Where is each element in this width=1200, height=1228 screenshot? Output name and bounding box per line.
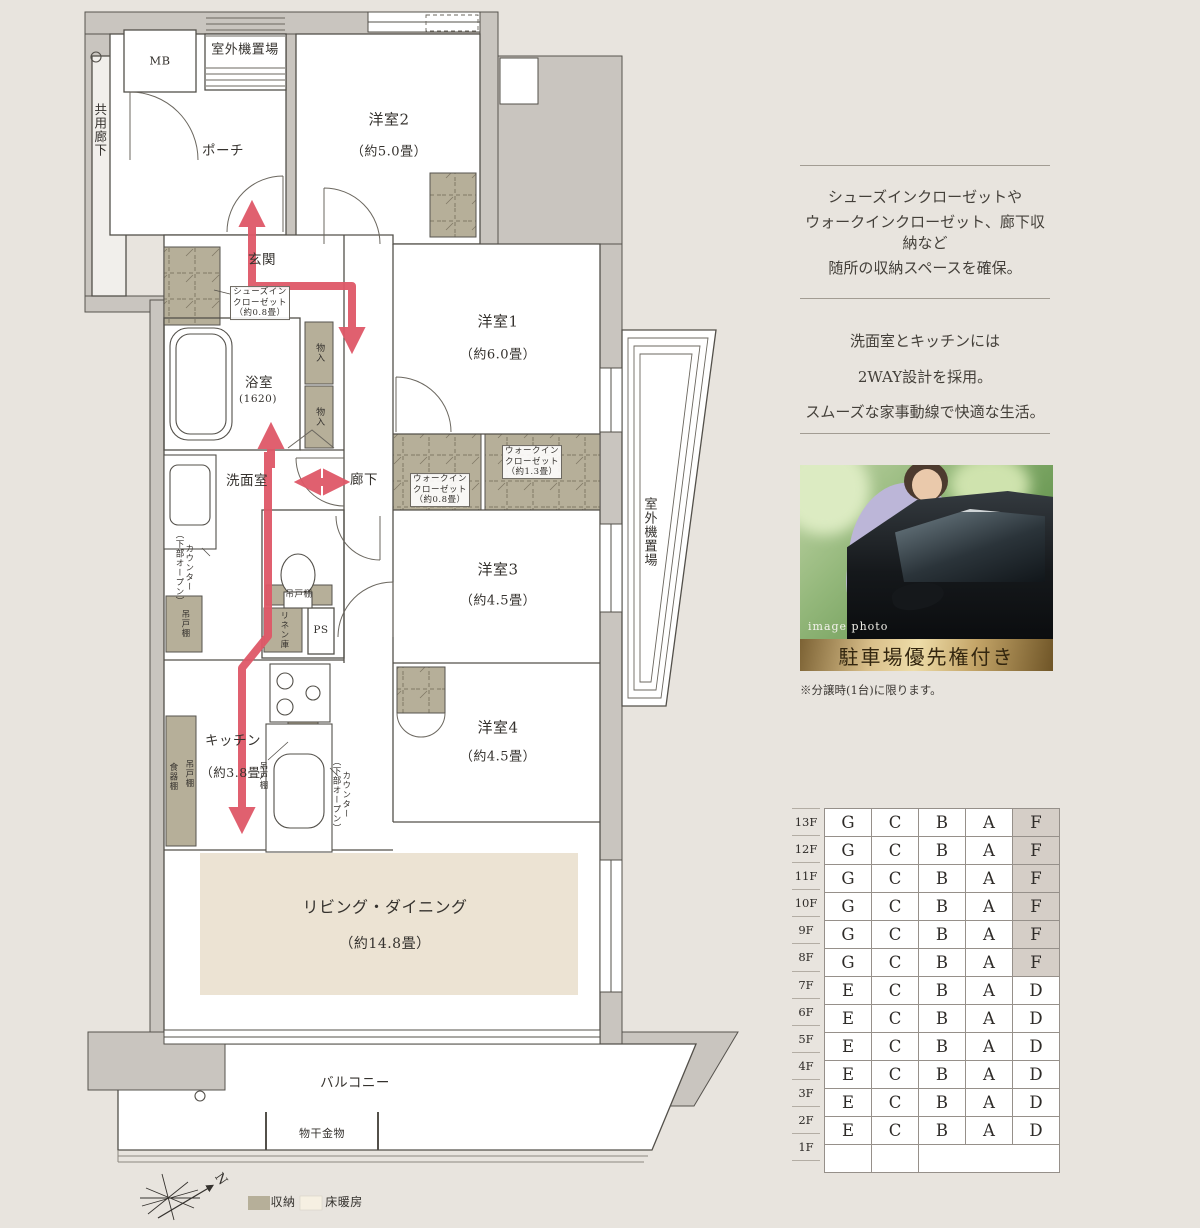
storage-small-label-2: 物入 xyxy=(314,407,324,427)
floor-plan-drawing xyxy=(0,0,770,1228)
table-row: ECBAD xyxy=(825,1033,1060,1061)
floor-label: 2F xyxy=(792,1106,820,1133)
unit-cell: E xyxy=(825,1005,872,1033)
feature-line: 洗面室とキッチンには xyxy=(800,330,1050,351)
parking-photo: image photo xyxy=(800,465,1053,639)
unit-cell xyxy=(919,1145,1060,1173)
feature-line: 随所の収納スペースを確保。 xyxy=(800,257,1050,278)
mb-label: MB xyxy=(149,54,170,69)
feature-line: ウォークインクローゼット、廊下収納など xyxy=(800,211,1050,253)
common-corridor-label: 共用廊下 xyxy=(92,103,106,157)
compass-icon xyxy=(140,1174,212,1220)
toilet-cupboard-label: 吊戸棚 xyxy=(285,589,312,600)
unit-cell: C xyxy=(872,949,919,977)
balcony-label: バルコニー xyxy=(320,1075,390,1093)
unit-cell: B xyxy=(919,865,966,893)
washroom-label: 洗面室 xyxy=(226,473,268,491)
unit-cell: F xyxy=(1013,893,1060,921)
legend-floor-heating-swatch xyxy=(300,1196,322,1210)
balcony-railing xyxy=(118,1150,648,1162)
unit-cell: B xyxy=(919,1033,966,1061)
bath-size-label: (1620) xyxy=(239,393,277,407)
unit-cell: C xyxy=(872,893,919,921)
room2-size-label: （約5.0畳） xyxy=(351,145,427,162)
unit-cell: A xyxy=(966,865,1013,893)
unit-cell: C xyxy=(872,809,919,837)
unit-cell: G xyxy=(825,809,872,837)
unit-cell: C xyxy=(872,1005,919,1033)
table-row: GCBAF xyxy=(825,893,1060,921)
floor-label: 8F xyxy=(792,943,820,970)
unit-cell: F xyxy=(1013,949,1060,977)
kitchen-cupboard-label: 吊戸棚 xyxy=(183,760,193,789)
ps-label: PS xyxy=(313,624,328,638)
stove xyxy=(270,664,330,722)
drying-fixture-label: 物干金物 xyxy=(296,1127,348,1141)
table-row: ECBAD xyxy=(825,1117,1060,1145)
sink-counter xyxy=(266,724,332,852)
unit-cell: F xyxy=(1013,809,1060,837)
person-face xyxy=(912,469,942,501)
floor-label-column: 13F12F11F10F9F8F7F6F5F4F3F2F1F xyxy=(792,808,820,1161)
unit-cell: D xyxy=(1013,1117,1060,1145)
floor-label: 13F xyxy=(792,808,820,835)
floor-label: 1F xyxy=(792,1133,820,1161)
kitchen-counter-label: カウンター （下部オープン） xyxy=(330,757,350,833)
parking-note: ※分譲時(1台)に限ります。 xyxy=(800,682,942,698)
table-row: ECBAD xyxy=(825,1061,1060,1089)
unit-cell: D xyxy=(1013,1061,1060,1089)
unit-cell: B xyxy=(919,1005,966,1033)
unit-cell: G xyxy=(825,921,872,949)
feature-line: シューズインクローゼットや xyxy=(800,186,1050,207)
bathtub xyxy=(170,328,232,440)
unit-cell: G xyxy=(825,893,872,921)
unit-cell: A xyxy=(966,1089,1013,1117)
unit-cell: B xyxy=(919,893,966,921)
sink-cupboard-label: 吊戸棚 xyxy=(257,762,267,791)
table-row: GCBAF xyxy=(825,921,1060,949)
feature-line: 2WAY設計を採用。 xyxy=(800,366,1050,387)
unit-cell: A xyxy=(966,1061,1013,1089)
unit-cell: A xyxy=(966,1033,1013,1061)
unit-cell: G xyxy=(825,837,872,865)
unit-cell: A xyxy=(966,893,1013,921)
wic13-label: ウォークイン クローゼット （約1.3畳） xyxy=(502,445,562,479)
feature-block-storage: シューズインクローゼットや ウォークインクローゼット、廊下収納など 随所の収納ス… xyxy=(800,186,1050,278)
unit-cell: F xyxy=(1013,837,1060,865)
floorplan-page: 共用廊下 MB 室外機置場 ポーチ 玄関 シューズイン クローゼット （約0.8… xyxy=(0,0,1200,1228)
floor-label: 3F xyxy=(792,1079,820,1106)
unit-cell: E xyxy=(825,977,872,1005)
room3-label: 洋室3 xyxy=(477,560,518,580)
unit-availability-table: GCBAFGCBAFGCBAFGCBAFGCBAFGCBAFECBADECBAD… xyxy=(824,808,1060,1173)
entrance-label: 玄関 xyxy=(248,252,276,270)
unit-cell: A xyxy=(966,837,1013,865)
dish-cupboard-label: 食器棚 xyxy=(167,763,177,792)
table-row xyxy=(825,1145,1060,1173)
unit-cell: B xyxy=(919,1089,966,1117)
unit-cell: B xyxy=(919,1117,966,1145)
linen-label: リネン庫 xyxy=(278,611,288,649)
unit-cell: A xyxy=(966,921,1013,949)
legend-storage-label: 収納 xyxy=(270,1195,295,1211)
unit-cell: C xyxy=(872,921,919,949)
room4-size-label: （約4.5畳） xyxy=(460,750,536,767)
unit-cell: C xyxy=(872,837,919,865)
storage-small-label-1: 物入 xyxy=(314,343,324,363)
unit-cell: F xyxy=(1013,865,1060,893)
legend-floor-heating-label: 床暖房 xyxy=(325,1195,363,1211)
floor-label: 9F xyxy=(792,916,820,943)
unit-cell: B xyxy=(919,921,966,949)
unit-cell: F xyxy=(1013,921,1060,949)
floor-label: 10F xyxy=(792,889,820,916)
shoes-in-closet-label: シューズイン クローゼット （約0.8畳） xyxy=(230,286,290,320)
floor-label: 7F xyxy=(792,971,820,998)
feature-line: スムーズな家事動線で快適な生活。 xyxy=(800,401,1050,422)
unit-cell: E xyxy=(825,1089,872,1117)
table-row: GCBAF xyxy=(825,949,1060,977)
table-row: ECBAD xyxy=(825,1089,1060,1117)
unit-cell: D xyxy=(1013,1005,1060,1033)
table-row: GCBAF xyxy=(825,837,1060,865)
unit-cell: B xyxy=(919,837,966,865)
unit-cell: A xyxy=(966,809,1013,837)
room3-size-label: （約4.5畳） xyxy=(460,594,536,611)
unit-cell: E xyxy=(825,1061,872,1089)
parking-priority-banner: 駐車場優先権付き xyxy=(800,639,1053,671)
room1-size-label: （約6.0畳） xyxy=(460,348,536,365)
divider-1 xyxy=(800,165,1050,166)
unit-cell: G xyxy=(825,865,872,893)
floor-label: 6F xyxy=(792,998,820,1025)
unit-cell: A xyxy=(966,949,1013,977)
unit-cell: A xyxy=(966,1117,1013,1145)
unit-cell: B xyxy=(919,949,966,977)
floor-label: 4F xyxy=(792,1052,820,1079)
table-row: GCBAF xyxy=(825,809,1060,837)
unit-cell: C xyxy=(872,1117,919,1145)
table-row: GCBAF xyxy=(825,865,1060,893)
unit-cell: D xyxy=(1013,1089,1060,1117)
unit-cell: C xyxy=(872,865,919,893)
image-photo-tag: image photo xyxy=(808,620,888,633)
table-row: ECBAD xyxy=(825,977,1060,1005)
unit-cell: G xyxy=(825,949,872,977)
legend-storage-swatch xyxy=(248,1196,270,1210)
unit-cell: B xyxy=(919,809,966,837)
unit-cell: D xyxy=(1013,977,1060,1005)
room4-label: 洋室4 xyxy=(477,718,518,738)
unit-cell: A xyxy=(966,977,1013,1005)
living-label: リビング・ダイニング xyxy=(302,898,467,919)
unit-cell: E xyxy=(825,1117,872,1145)
porch-label: ポーチ xyxy=(202,143,244,161)
floor-plan: 共用廊下 MB 室外機置場 ポーチ 玄関 シューズイン クローゼット （約0.8… xyxy=(0,0,770,1228)
table-row: ECBAD xyxy=(825,1005,1060,1033)
unit-cell xyxy=(872,1145,919,1173)
wic08-label: ウォークイン クローゼット （約0.8畳） xyxy=(410,473,470,507)
room2-label: 洋室2 xyxy=(368,110,409,130)
unit-cell: D xyxy=(1013,1033,1060,1061)
unit-cell: C xyxy=(872,1061,919,1089)
bath-label: 浴室 xyxy=(245,375,273,393)
floor-heating-area xyxy=(200,853,578,995)
unit-cell: B xyxy=(919,977,966,1005)
unit-cell xyxy=(825,1145,872,1173)
unit-cell: C xyxy=(872,977,919,1005)
floor-label: 11F xyxy=(792,862,820,889)
feature-block-2way: 洗面室とキッチンには 2WAY設計を採用。 スムーズな家事動線で快適な生活。 xyxy=(800,330,1050,422)
unit-cell: E xyxy=(825,1033,872,1061)
hallway-label: 廊下 xyxy=(350,472,378,490)
living-size-label: （約14.8畳） xyxy=(339,935,430,953)
unit-cell: C xyxy=(872,1089,919,1117)
kitchen-label: キッチン xyxy=(205,733,261,751)
unit-cell: C xyxy=(872,1033,919,1061)
washroom-cupboard-label: 吊戸棚 xyxy=(179,610,189,639)
divider-3 xyxy=(800,433,1050,434)
floor-label: 12F xyxy=(792,835,820,862)
outdoor-unit-top-label: 室外機置場 xyxy=(211,43,279,60)
room1-label: 洋室1 xyxy=(477,312,518,332)
unit-cell: B xyxy=(919,1061,966,1089)
unit-cell: A xyxy=(966,1005,1013,1033)
floor-label: 5F xyxy=(792,1025,820,1052)
outdoor-unit-right-label: 室外機置場 xyxy=(641,497,656,567)
divider-2 xyxy=(800,298,1050,299)
washroom-counter-label: カウンター （下部オープン） xyxy=(173,530,193,606)
